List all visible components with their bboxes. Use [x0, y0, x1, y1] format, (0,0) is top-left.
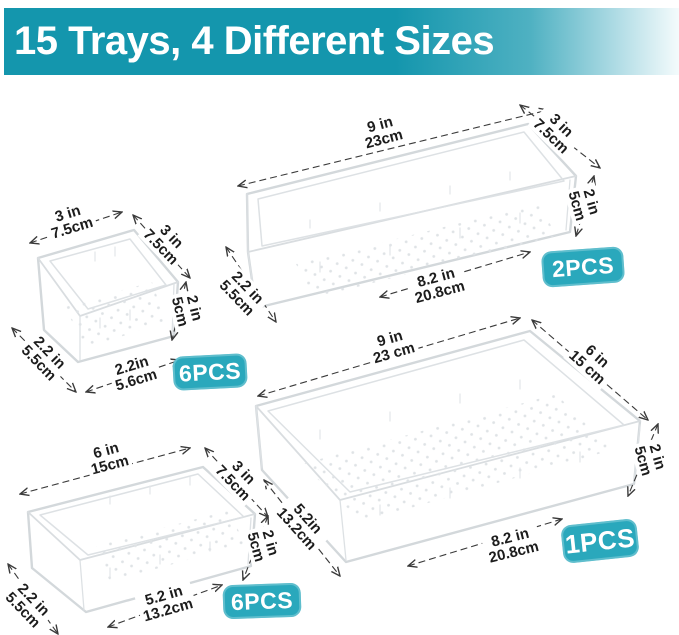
product-infographic: 15 Trays, 4 Different Sizes	[0, 0, 679, 635]
medium-tray-graphic	[28, 467, 255, 612]
badge-long-tray-qty: 2PCS	[541, 246, 625, 288]
badge-small-tray-qty: 6PCS	[172, 353, 248, 391]
badge-medium-tray-qty: 6PCS	[222, 583, 301, 620]
badge-large-tray-qty: 1PCS	[560, 518, 640, 564]
